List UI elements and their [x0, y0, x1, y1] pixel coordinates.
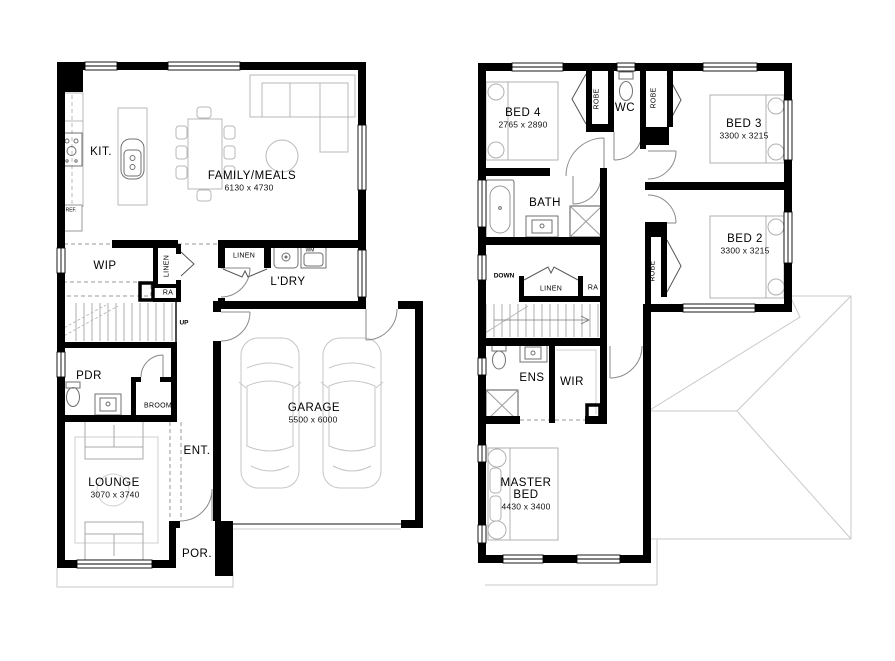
room-label-entry: ENT. [184, 445, 211, 457]
label-robe-bed3: ROBE [650, 87, 657, 108]
label-fridge: REF. [66, 208, 77, 213]
label-linen-wip: LINEN [163, 255, 170, 277]
label-linen-laundry: LINEN [233, 252, 255, 259]
label-return-air-ground: RA [163, 289, 173, 296]
room-label-wc: WC [615, 102, 635, 114]
room-label-bed2: BED 2 [727, 233, 763, 245]
ground-stairs [60, 302, 176, 342]
label-robe-bed4: ROBE [593, 88, 600, 109]
room-dims-garage: 5500 x 6000 [289, 416, 338, 425]
room-label-garage: GARAGE [288, 402, 340, 414]
room-label-porch: POR. [182, 548, 212, 560]
label-return-air-upper: RA [588, 284, 598, 291]
garage-cars [233, 338, 401, 529]
room-label-powder: PDR [76, 370, 102, 382]
label-washing-machine: WM [306, 248, 315, 253]
room-label-lounge: LOUNGE [88, 477, 140, 489]
room-dims-master-bed: 4430 x 3400 [502, 503, 551, 512]
floorplan-page: KIT. FAMILY/MEALS 6130 x 4730 REF. WIP L… [0, 0, 895, 661]
room-dims-bed2: 3300 x 3215 [721, 247, 770, 256]
room-label-ensuite: ENS [519, 372, 544, 384]
label-broom: BROOM [144, 402, 172, 409]
room-label-wip: WIP [93, 260, 116, 272]
room-label-laundry: L'DRY [270, 276, 305, 288]
upper-stairs [482, 304, 598, 337]
room-label-bath: BATH [529, 197, 561, 209]
room-label-bed3: BED 3 [726, 118, 762, 130]
label-stairs-up: UP [179, 321, 188, 328]
room-label-family-meals: FAMILY/MEALS [208, 170, 296, 182]
room-label-bed4: BED 4 [505, 107, 541, 119]
room-label-wir: WIR [560, 376, 584, 388]
label-linen-upper: LINEN [540, 285, 562, 292]
floorplan-drawing [0, 0, 895, 661]
label-robe-bed2: ROBE [649, 260, 656, 281]
room-label-kitchen: KIT. [90, 146, 112, 158]
room-dims-lounge: 3070 x 3740 [91, 491, 140, 500]
room-label-master-bed: MASTER BED [497, 477, 555, 501]
room-dims-family-meals: 6130 x 4730 [225, 184, 274, 193]
room-dims-bed3: 3300 x 3215 [720, 132, 769, 141]
label-stairs-down: DOWN [494, 274, 515, 281]
room-dims-bed4: 2765 x 2890 [499, 121, 548, 130]
